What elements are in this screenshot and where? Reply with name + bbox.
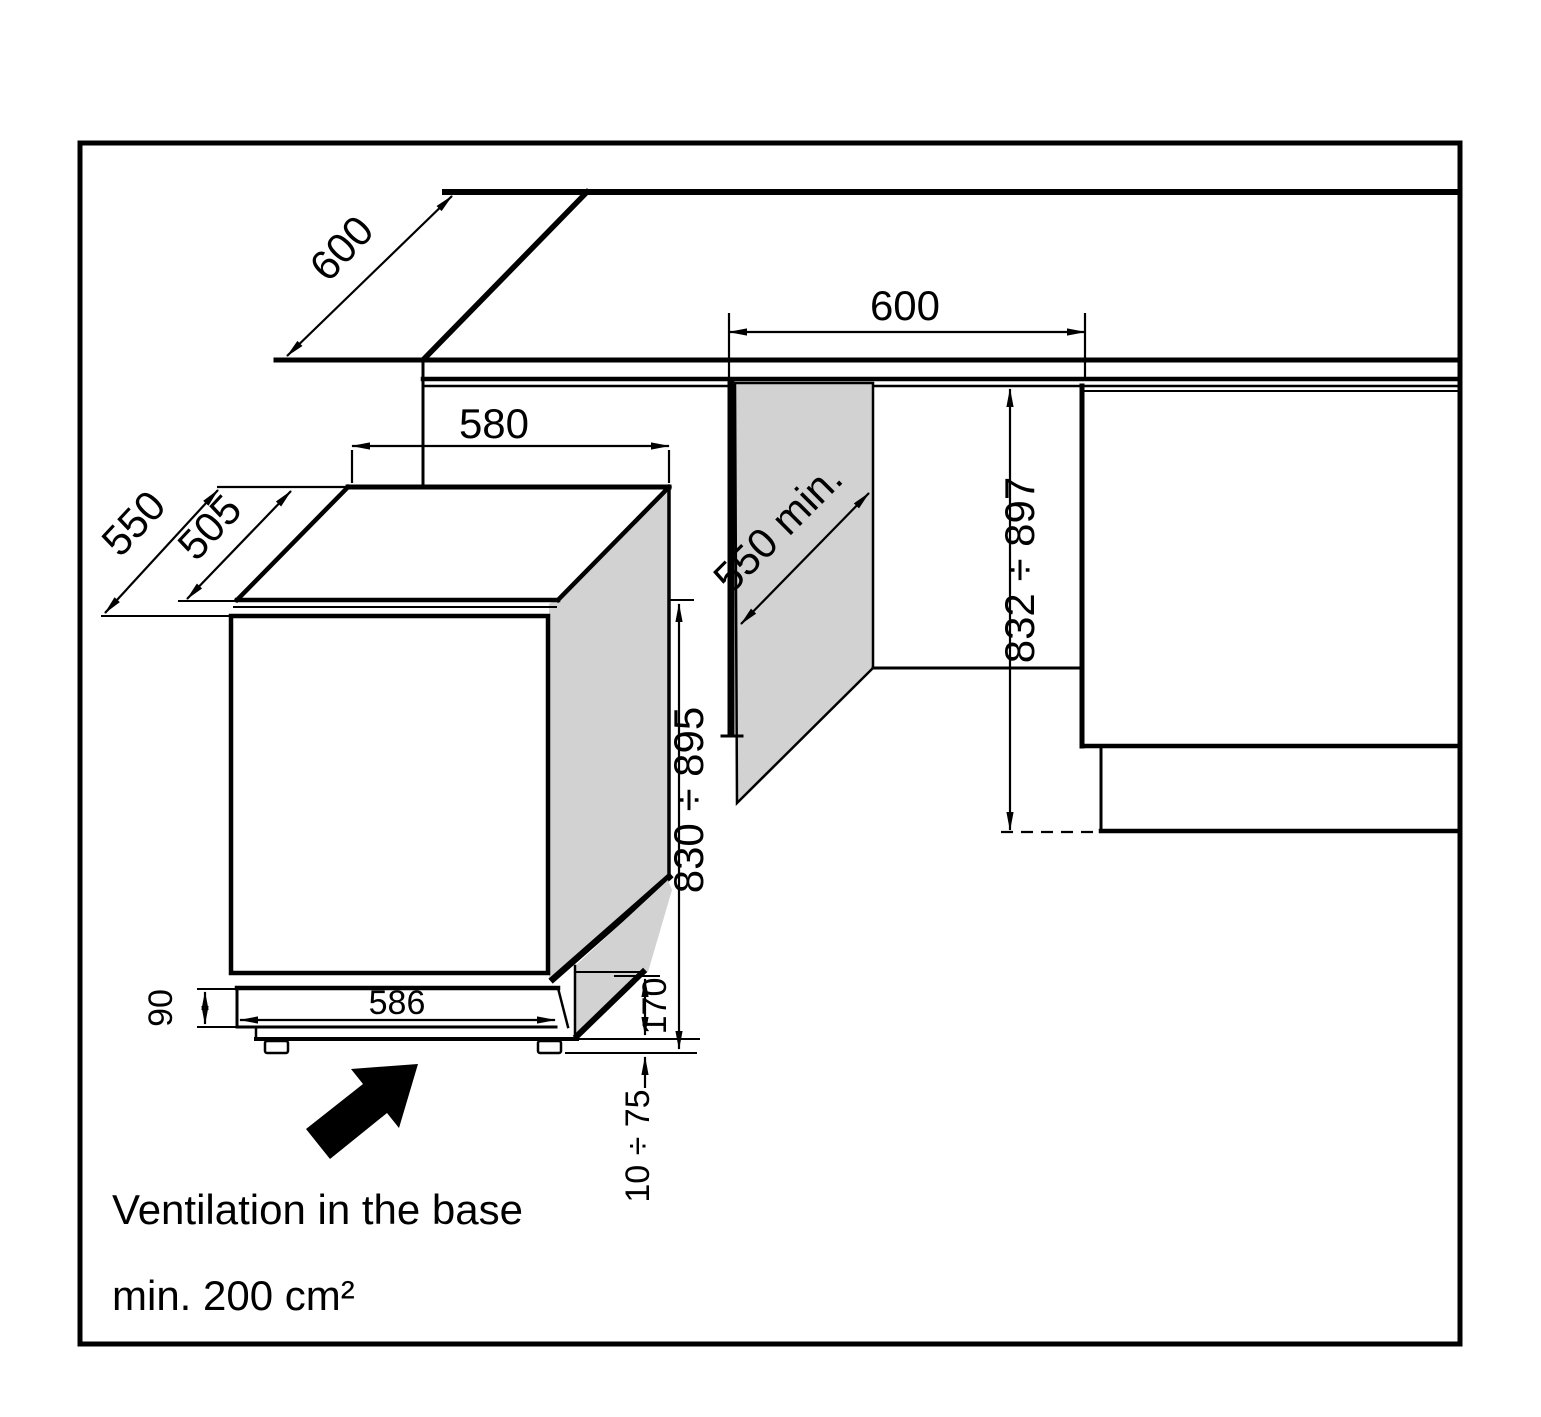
ventilation-area-note: min. 200 cm² <box>112 1272 355 1319</box>
dim-counter-depth: 600 <box>287 196 452 356</box>
niche-side-panel <box>735 383 873 803</box>
dim-niche-width-label: 600 <box>870 282 940 329</box>
counter-left-edge <box>423 192 587 360</box>
base-right-edge <box>558 988 568 1027</box>
ventilation-note: Ventilation in the base <box>112 1186 523 1233</box>
dim-586-label: 586 <box>369 984 426 1022</box>
appliance-door <box>231 616 548 973</box>
dim-top-width-label: 580 <box>459 400 529 447</box>
foot-left <box>265 1041 288 1053</box>
dim-plinth-height: 90 <box>142 989 240 1027</box>
appliance <box>217 487 672 1053</box>
dim-top-width: 580 <box>352 400 669 483</box>
right-cabinet <box>1001 386 1458 832</box>
dim-line-counter-depth <box>287 196 452 356</box>
dim-depths: 550 505 <box>92 481 291 616</box>
ventilation-arrow-icon <box>306 1064 418 1159</box>
dim-niche-width: 600 <box>729 282 1085 381</box>
dim-90-label: 90 <box>142 989 180 1027</box>
foot-right <box>538 1041 561 1053</box>
installation-diagram: 600 600 550 min. 832 ÷ 897 <box>0 0 1541 1417</box>
dim-niche-height-label: 832 ÷ 897 <box>996 477 1043 664</box>
dim-feet-adjust-label: 10 ÷ 75 <box>619 1089 657 1202</box>
dim-505-label: 505 <box>168 485 250 568</box>
top-left-edge <box>237 487 348 600</box>
dim-appliance-height-label: 830 ÷ 895 <box>665 707 712 894</box>
dim-counter-depth-label: 600 <box>300 206 382 289</box>
installation-diagram-page: 600 600 550 min. 832 ÷ 897 <box>0 0 1541 1417</box>
dim-niche-height: 832 ÷ 897 <box>996 389 1043 830</box>
dim-feet-adjust: 10 ÷ 75 <box>619 1057 657 1203</box>
dim-170-label: 170 <box>636 978 674 1035</box>
